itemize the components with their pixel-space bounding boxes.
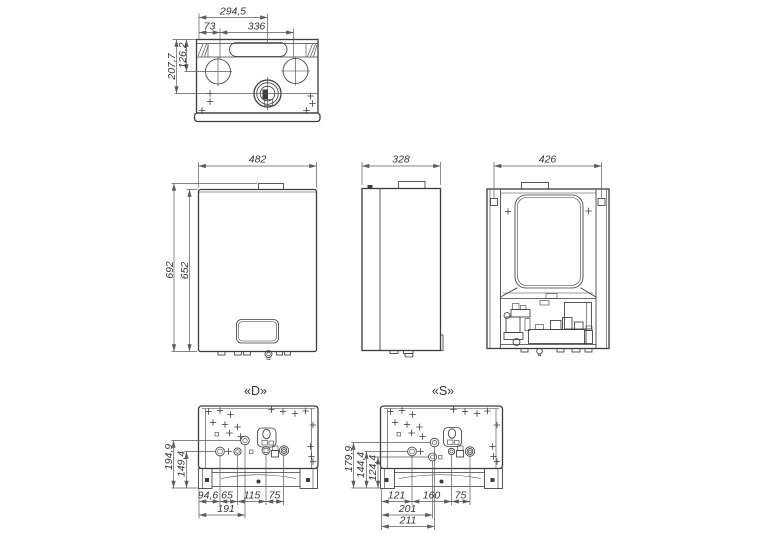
flue-collar-rear — [522, 183, 549, 190]
view-label-d: «D» — [244, 384, 267, 398]
dim-s-offset-top: 211 — [399, 515, 417, 527]
bottom-view-s: «S» — [343, 384, 503, 530]
dim-d-seg1: 94,6 — [198, 490, 219, 502]
dim-height-casing: 652 — [179, 262, 191, 280]
dim-s-seg2: 160 — [423, 490, 441, 502]
top-view: 294,5 73 336 207,7 126,2 — [166, 6, 320, 122]
gas-connection-d — [241, 436, 250, 445]
dim-d-height-row: 149,4 — [176, 451, 188, 477]
rear-slot — [230, 43, 288, 57]
dim-s-seg3: 75 — [455, 490, 467, 502]
flue-collar-side — [399, 182, 426, 189]
boiler-dimension-drawing: 294,5 73 336 207,7 126,2 — [0, 0, 762, 534]
flue-collar-front — [259, 184, 284, 190]
bottom-lip-s — [381, 469, 503, 489]
dim-rear-to-knockout: 126,2 — [177, 42, 189, 68]
dim-s-height-mid: 144,4 — [355, 452, 367, 478]
top-lip — [195, 113, 321, 122]
mounting-hole-right — [598, 199, 605, 206]
dim-d-offset-gas: 191 — [217, 503, 235, 515]
front-view: 482 692 652 — [164, 154, 317, 360]
mounting-hole-left — [491, 199, 498, 206]
dim-knockout-spacing: 336 — [248, 21, 266, 33]
side-bottom-connections — [390, 351, 413, 358]
dim-d-height-gas: 194,9 — [163, 444, 175, 470]
dim-d-seg2: 65 — [221, 490, 233, 502]
dim-width: 482 — [249, 154, 267, 166]
side-view-dimensions: 328 — [362, 154, 441, 186]
combustion-chamber — [515, 195, 583, 288]
knockout-right — [281, 57, 310, 86]
rear-view-dimensions: 426 — [494, 154, 602, 199]
bottom-lip-d — [199, 469, 318, 489]
dim-s-height-top: 179,9 — [343, 446, 355, 472]
connections-d — [215, 428, 289, 457]
dim-flue-offset: 294,5 — [219, 6, 246, 18]
front-view-dimensions: 482 692 652 — [164, 154, 317, 352]
gas-connection-s — [430, 438, 439, 447]
side-view: 328 — [362, 154, 443, 358]
dim-d-seg3: 115 — [244, 490, 261, 502]
dim-s-height-row: 124,4 — [367, 455, 379, 481]
view-label-s: «S» — [432, 384, 454, 398]
rear-channel — [197, 43, 319, 58]
connections-s — [397, 428, 475, 462]
flue-hood — [501, 288, 597, 299]
dim-depth: 328 — [392, 154, 410, 166]
bottom-view-d: «D» — [163, 384, 318, 519]
rear-bottom-connections — [521, 348, 592, 355]
display-panel — [237, 320, 279, 344]
rear-view: 426 — [487, 154, 609, 356]
marks-d — [205, 406, 316, 464]
dim-s-seg1: 121 — [388, 490, 406, 502]
dim-s-offset-mid: 201 — [398, 503, 417, 515]
hydraulic-components — [504, 301, 593, 346]
dim-d-seg4: 75 — [269, 490, 281, 502]
dim-mounting-width: 426 — [539, 154, 557, 166]
drawing-canvas: 294,5 73 336 207,7 126,2 — [0, 0, 762, 534]
dim-height-overall: 692 — [164, 261, 176, 279]
dim-left-to-knockout: 73 — [204, 21, 216, 33]
